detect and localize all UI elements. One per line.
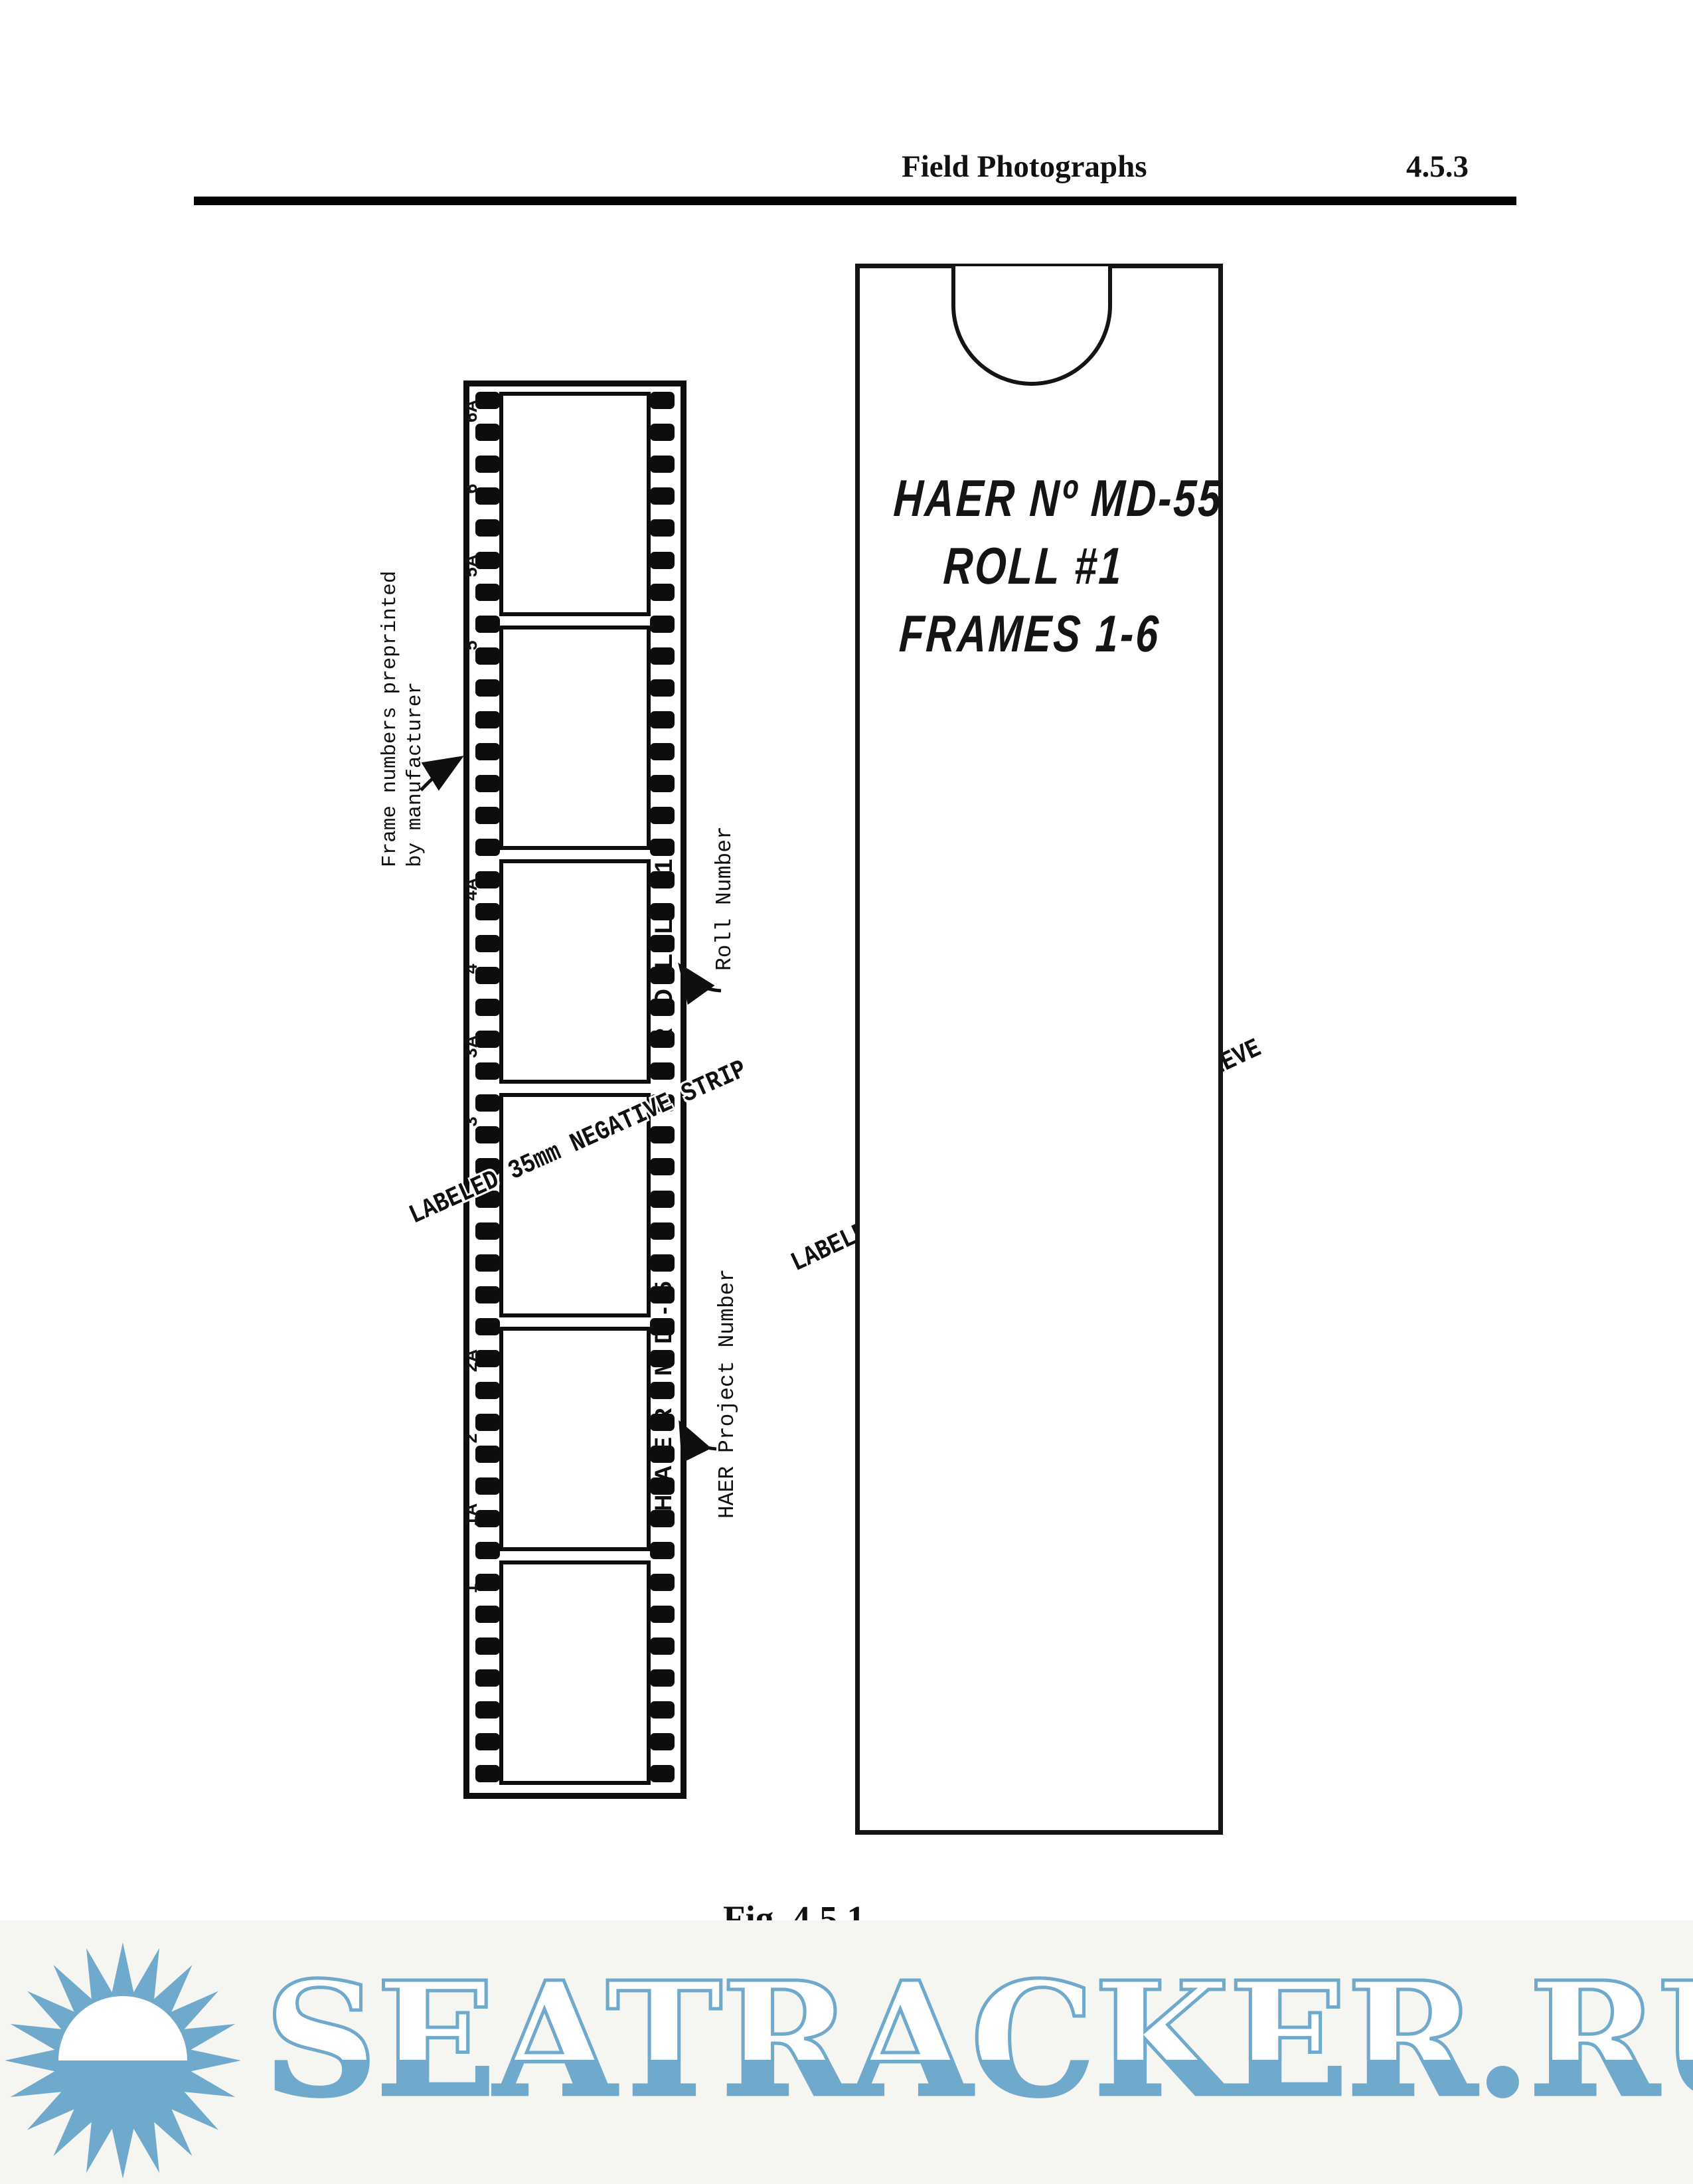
sprocket-hole xyxy=(475,584,500,601)
sleeve-line-roll: ROLL #1 xyxy=(888,534,1179,602)
sprocket-hole xyxy=(650,679,675,697)
sprocket-hole xyxy=(650,584,675,601)
sun-icon xyxy=(2,1940,244,2181)
sprocket-hole xyxy=(475,999,500,1016)
sprocket-hole xyxy=(475,743,500,760)
frame-number-label: 5A xyxy=(461,547,481,584)
watermark-text-top-clip: SEATRACKER.RU xyxy=(264,1961,1693,2060)
sprocket-hole xyxy=(475,1286,500,1303)
sprocket-hole xyxy=(650,1126,675,1143)
sprocket-hole xyxy=(650,807,675,824)
sprocket-hole xyxy=(650,392,675,409)
sprocket-hole xyxy=(475,519,500,537)
film-frame xyxy=(499,1560,651,1785)
film-strip: 6A65A54A43A32A21A1 ROLL 1 HAER MD-55 xyxy=(463,380,686,1799)
sprocket-hole xyxy=(650,616,675,633)
sprocket-hole xyxy=(475,1701,500,1719)
sprocket-hole xyxy=(650,743,675,760)
roll-number-arrow xyxy=(684,971,721,991)
manual-page: Field Photographs 4.5.3 6A65A54A43A32A21… xyxy=(0,0,1693,2184)
frame-number-label: 4 xyxy=(461,950,481,987)
sprocket-hole xyxy=(475,1733,500,1750)
sprocket-hole xyxy=(475,1254,500,1272)
film-frame xyxy=(499,859,651,1084)
sleeve-line-frames: FRAMES 1-6 xyxy=(884,602,1175,669)
frame-number-label: 3 xyxy=(461,1103,481,1140)
sprocket-hole xyxy=(650,519,675,537)
watermark-text: SEATRACKER.RU SEATRACKER.RU xyxy=(264,1961,1693,2118)
film-frame xyxy=(499,392,651,616)
sprocket-hole xyxy=(650,1701,675,1719)
haer-project-number-note: HAER Project Number xyxy=(714,1253,741,1519)
sprocket-hole xyxy=(475,1477,500,1495)
frame-number-label: 6A xyxy=(461,392,481,430)
film-edge-roll-label: ROLL 1 xyxy=(651,826,677,1058)
frame-number-label: 2 xyxy=(461,1420,481,1457)
sprocket-hole xyxy=(475,1638,500,1655)
sprocket-hole xyxy=(475,711,500,728)
sprocket-hole xyxy=(650,1669,675,1687)
frame-number-label: 5 xyxy=(461,627,481,664)
sprocket-hole xyxy=(650,647,675,665)
sprocket-hole xyxy=(650,1191,675,1208)
frame-number-label: 2A xyxy=(461,1342,481,1379)
sprocket-hole xyxy=(650,1638,675,1655)
sprocket-hole xyxy=(650,711,675,728)
sprocket-hole xyxy=(475,1765,500,1782)
annotation-arrows xyxy=(0,0,1693,2184)
sprocket-hole xyxy=(650,552,675,569)
sprocket-hole xyxy=(650,424,675,441)
frame-number-label: 1 xyxy=(461,1570,481,1607)
sleeve-handwriting: HAER Nº MD-55 ROLL #1 FRAMES 1-6 xyxy=(884,466,1182,669)
sprocket-hole xyxy=(650,775,675,792)
watermark-text-outline: SEATRACKER.RU xyxy=(264,1961,1693,2060)
frame-numbers-note-line1: Frame numbers preprinted xyxy=(378,588,403,867)
sprocket-hole xyxy=(650,1765,675,1782)
sprocket-hole xyxy=(475,1606,500,1623)
sprocket-hole xyxy=(475,807,500,824)
film-edge-project-label: HAER MD-55 xyxy=(651,1234,677,1520)
frame-numbers-note: Frame numbers preprinted by manufacturer xyxy=(378,588,428,867)
roll-number-note: Roll Number xyxy=(712,818,738,971)
sprocket-hole xyxy=(475,679,500,697)
sprocket-hole xyxy=(475,1222,500,1240)
page-header-section: 4.5.3 xyxy=(1406,149,1469,185)
sprocket-hole xyxy=(650,1062,675,1080)
sprocket-hole xyxy=(475,935,500,952)
page-header-title: Field Photographs xyxy=(902,149,1147,185)
sprocket-hole xyxy=(475,839,500,856)
sprocket-hole xyxy=(650,456,675,473)
sprocket-hole xyxy=(650,1542,675,1559)
film-frame xyxy=(499,626,651,850)
frame-number-label: 4A xyxy=(461,871,481,908)
frame-number-label: 6 xyxy=(461,470,481,507)
sleeve-line-project: HAER Nº MD-55 xyxy=(892,466,1182,534)
header-rule xyxy=(194,197,1516,205)
project-number-arrow xyxy=(683,1429,716,1449)
frame-numbers-note-line2: by manufacturer xyxy=(403,588,428,867)
frame-number-label: 3A xyxy=(461,1028,481,1065)
frame-number-label: 1A xyxy=(461,1496,481,1533)
sprocket-hole xyxy=(475,775,500,792)
sprocket-hole xyxy=(650,487,675,505)
sprocket-hole xyxy=(650,1606,675,1623)
sprocket-hole xyxy=(475,1542,500,1559)
sprocket-hole xyxy=(650,1574,675,1591)
film-frame xyxy=(499,1327,651,1551)
sprocket-hole xyxy=(650,1158,675,1175)
sprocket-hole xyxy=(475,1669,500,1687)
sprocket-hole xyxy=(475,1318,500,1335)
sprocket-hole xyxy=(650,1733,675,1750)
sprocket-hole xyxy=(475,1382,500,1399)
